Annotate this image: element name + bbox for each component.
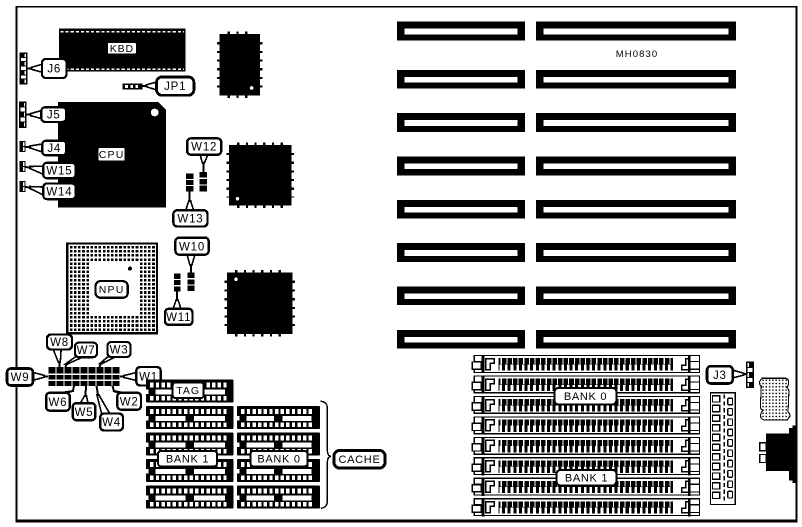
svg-text:J3: J3 (713, 370, 727, 382)
svg-text:BANK 1: BANK 1 (166, 454, 209, 466)
svg-text:MH0830: MH0830 (616, 49, 659, 60)
svg-text:W11: W11 (166, 312, 191, 324)
svg-text:W12: W12 (191, 142, 217, 154)
svg-text:W2: W2 (120, 396, 139, 408)
svg-text:BANK 1: BANK 1 (565, 473, 608, 485)
svg-text:W13: W13 (177, 213, 203, 225)
svg-text:CPU: CPU (99, 149, 125, 161)
svg-text:W3: W3 (110, 345, 129, 357)
svg-text:J5: J5 (47, 110, 61, 122)
svg-text:W14: W14 (46, 186, 72, 198)
svg-text:W5: W5 (75, 407, 94, 419)
svg-text:KBD: KBD (110, 43, 134, 55)
svg-text:W10: W10 (179, 241, 205, 253)
svg-text:W15: W15 (46, 166, 72, 178)
svg-text:J6: J6 (47, 64, 61, 76)
svg-text:JP1: JP1 (164, 81, 186, 93)
svg-text:CACHE: CACHE (338, 454, 380, 466)
svg-text:NPU: NPU (99, 284, 125, 296)
svg-text:J4: J4 (47, 143, 61, 155)
svg-text:W6: W6 (49, 397, 68, 409)
svg-text:W8: W8 (50, 337, 69, 349)
svg-text:TAG: TAG (176, 385, 200, 397)
svg-text:W9: W9 (11, 372, 30, 384)
svg-text:W4: W4 (102, 417, 121, 429)
svg-text:W7: W7 (77, 345, 96, 357)
svg-text:BANK 0: BANK 0 (257, 454, 300, 466)
svg-text:BANK 0: BANK 0 (564, 391, 607, 403)
